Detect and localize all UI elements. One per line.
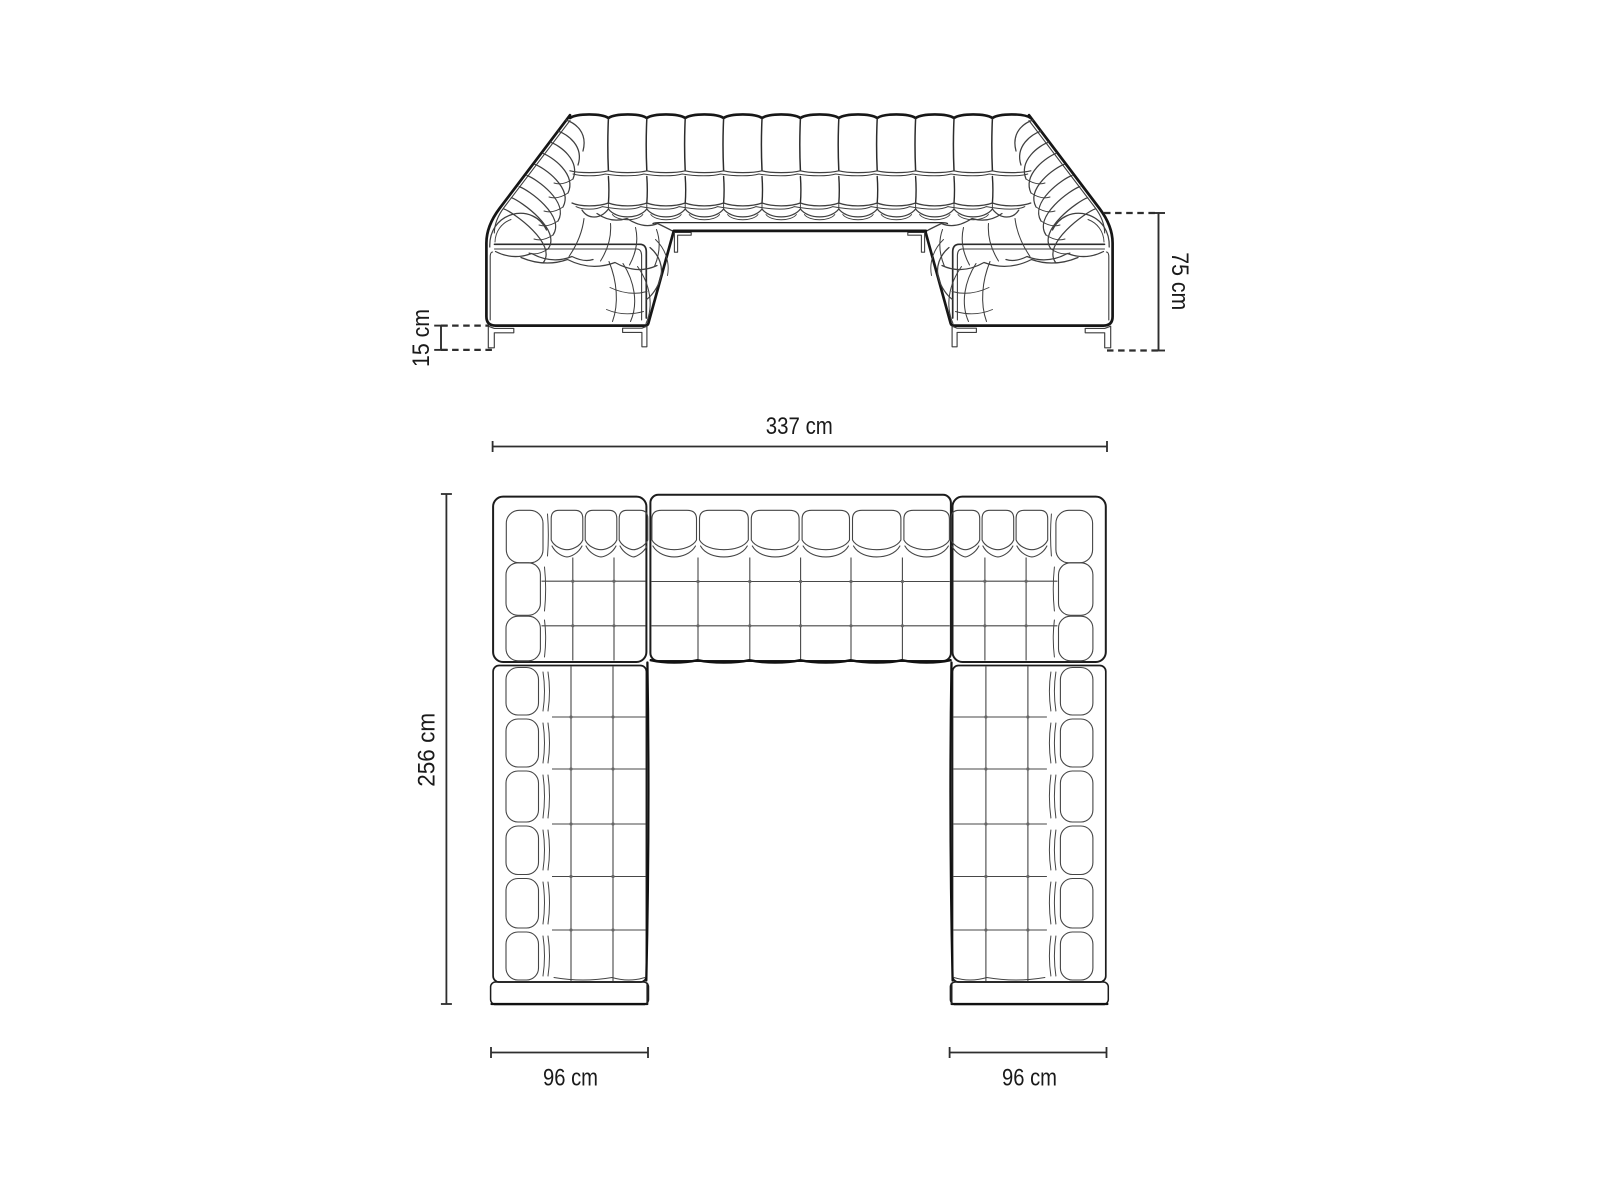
svg-text:96 cm: 96 cm [1002,1065,1057,1092]
svg-text:337 cm: 337 cm [766,413,833,440]
svg-text:256 cm: 256 cm [414,713,441,787]
svg-text:15 cm: 15 cm [408,309,435,367]
svg-text:96 cm: 96 cm [543,1065,598,1092]
svg-text:75 cm: 75 cm [1166,252,1193,310]
